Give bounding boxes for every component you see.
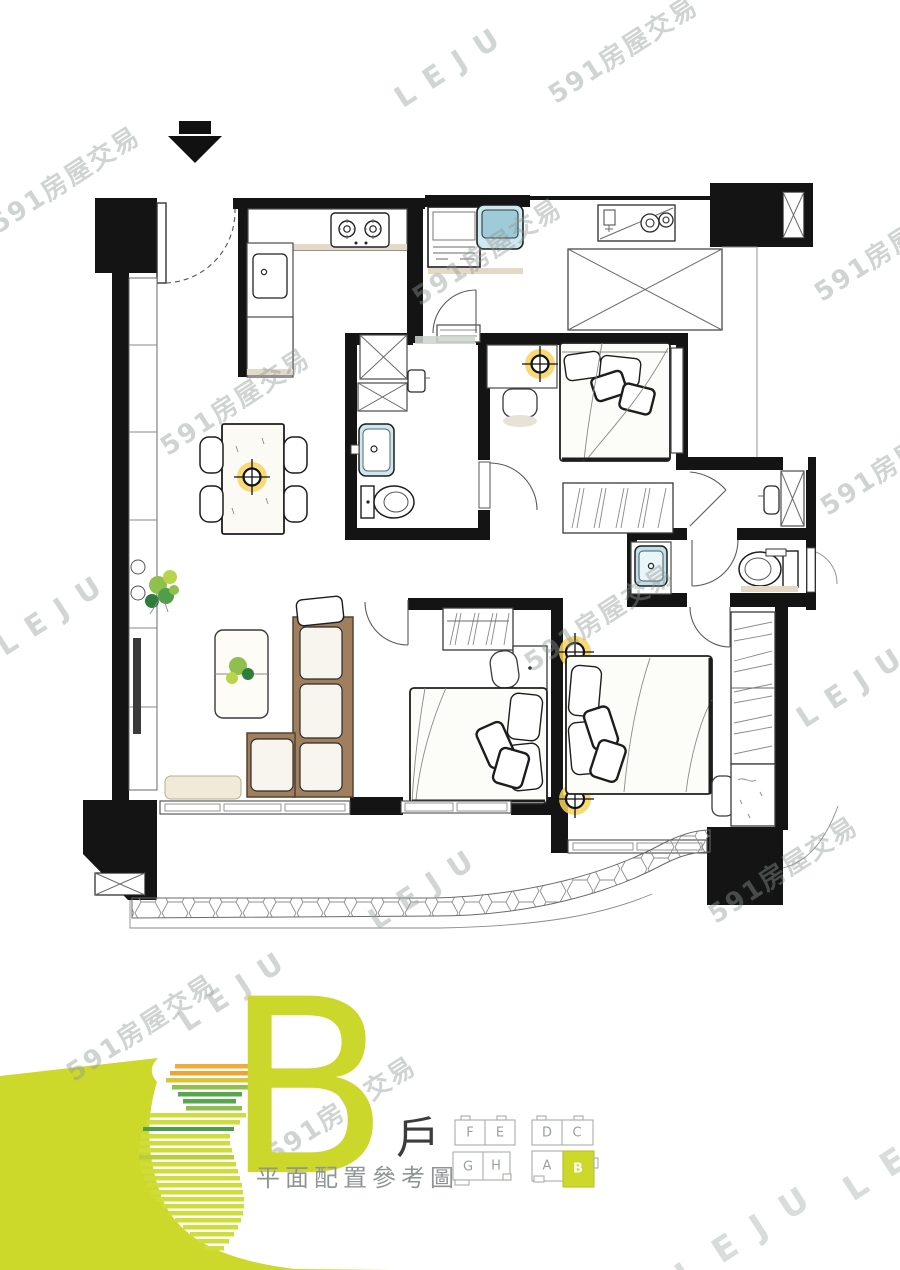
toilet-2-icon (739, 549, 798, 587)
ac-platform-bottom-left (95, 873, 145, 895)
entrance-door (157, 203, 235, 283)
entrance-arrow (168, 121, 222, 163)
storage-cabinet-x (568, 249, 722, 330)
shaft-x-3 (781, 471, 804, 526)
unit-label: 戶 (396, 1102, 440, 1166)
keyplan-unit-a: A (543, 1159, 552, 1174)
shaft-box-top-right (783, 192, 804, 238)
toilet-icon (361, 486, 414, 518)
bedroom-master (556, 612, 775, 853)
keyplan-unit-e: E (496, 1126, 504, 1141)
washbasin-icon (408, 370, 430, 392)
wall-cabinet-strip (129, 278, 157, 790)
living-area (160, 596, 353, 814)
keyplan-unit-f: F (466, 1126, 473, 1141)
wardrobe-hatched (731, 612, 775, 764)
bed-double (560, 343, 670, 461)
window-bedroom3 (401, 801, 511, 813)
coffee-table (215, 630, 268, 718)
stove-icon (331, 213, 389, 247)
keyplan-unit-h: H (491, 1159, 501, 1174)
kitchen-sink-icon (253, 254, 287, 298)
vanity-icon (351, 424, 394, 476)
bed-double (410, 688, 547, 804)
washer-dryer-icon (598, 205, 675, 241)
floorplan-drawing (0, 0, 900, 1270)
tv-icon (133, 638, 141, 734)
laundry-area (568, 205, 722, 330)
hallway (690, 471, 804, 526)
wardrobe-hatched (443, 608, 513, 650)
bedroom-2 (479, 343, 683, 533)
oven-icon (428, 207, 480, 267)
keyplan-unit-g: G (463, 1160, 473, 1175)
sink-blue-icon (635, 546, 667, 586)
keyplan-unit-c: C (572, 1126, 581, 1141)
small-basin-icon (758, 486, 779, 514)
counter-sink-blue (477, 205, 523, 249)
dresser (731, 764, 775, 826)
closet-hatched (563, 483, 673, 533)
shaft-x-1 (360, 335, 407, 379)
shaft-x-2 (358, 383, 407, 411)
keyplan-unit-b: B (573, 1162, 583, 1177)
plan-caption: 平面配置參考圖 (256, 1158, 459, 1193)
keyplan-unit-d: D (542, 1126, 552, 1141)
bed-master (566, 656, 712, 794)
window-living (160, 801, 350, 814)
floorplan-page: 591房屋交易 591房屋交易 591房屋交易 591房屋交易 591房屋交易 … (0, 0, 900, 1270)
